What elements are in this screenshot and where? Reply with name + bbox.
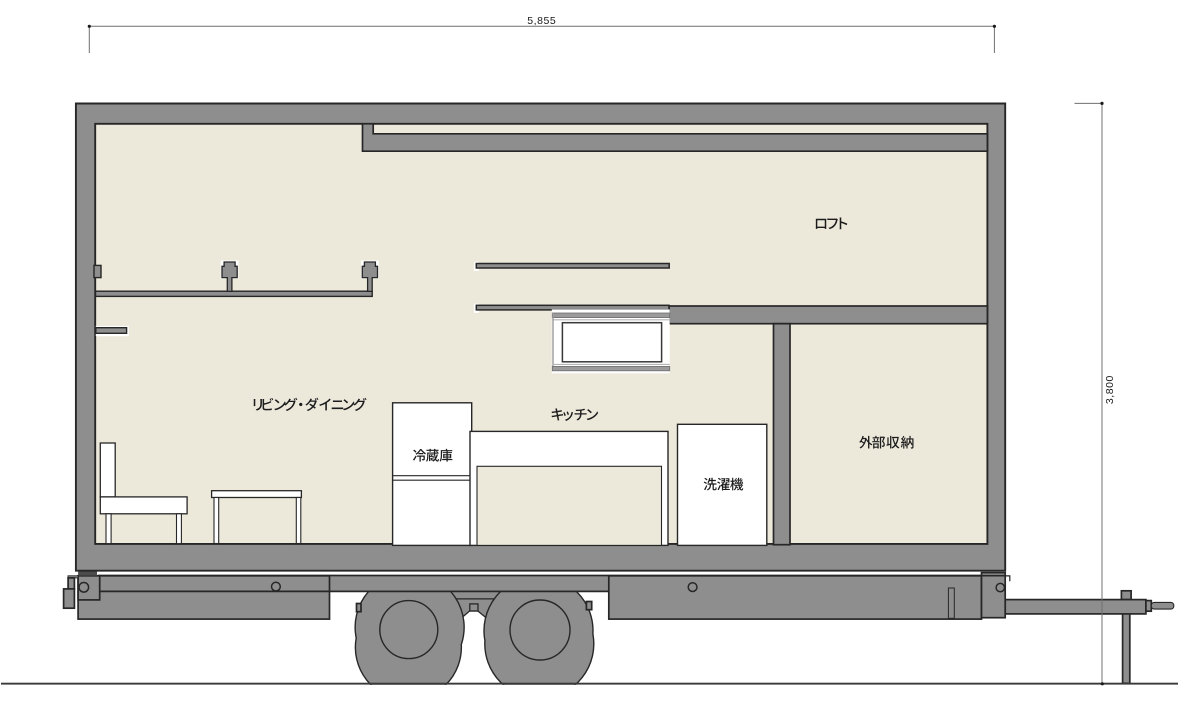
svg-text:3,800: 3,800: [1104, 375, 1116, 404]
svg-text:5,855: 5,855: [527, 15, 556, 27]
